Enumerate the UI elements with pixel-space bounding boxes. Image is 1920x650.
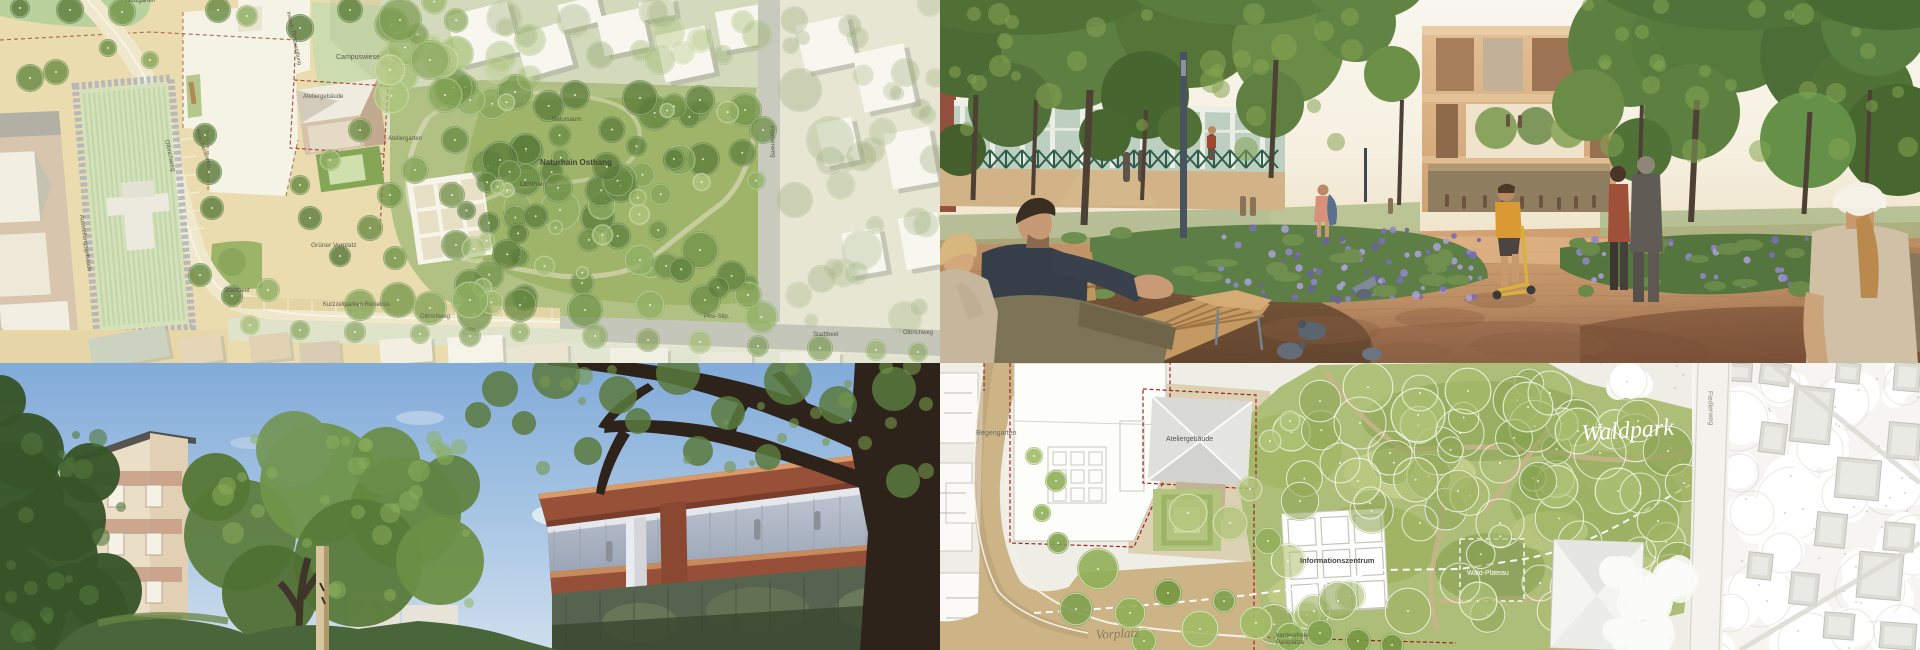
svg-text:Parkplätze: Parkplätze — [1276, 640, 1305, 646]
svg-text:Stadtbeet: Stadtbeet — [224, 288, 250, 294]
svg-text:Ateliergebäude: Ateliergebäude — [303, 94, 344, 100]
svg-text:Campuswiese: Campuswiese — [336, 54, 380, 61]
svg-text:Kurzzeitparken Reisebus: Kurzzeitparken Reisebus — [323, 302, 390, 308]
svg-text:Lichthain: Lichthain — [520, 181, 546, 188]
svg-text:Fiedlerweg: Fiedlerweg — [1706, 391, 1714, 426]
svg-text:Stadtbeet: Stadtbeet — [813, 332, 839, 338]
svg-text:Natursaum: Natursaum — [552, 117, 581, 123]
svg-text:Naturhain Osthang: Naturhain Osthang — [540, 158, 612, 167]
svg-text:Informationszentrum: Informationszentrum — [1300, 556, 1375, 565]
svg-text:Ateliergebäude: Ateliergebäude — [1166, 436, 1213, 443]
svg-text:Nutzgarten: Nutzgarten — [126, 0, 155, 4]
svg-text:Grüner Vorplatz: Grüner Vorplatz — [311, 242, 357, 249]
svg-text:Wald-Plateau: Wald-Plateau — [1467, 570, 1509, 577]
svg-text:Vorplatz: Vorplatz — [1095, 625, 1139, 642]
svg-text:Regengarten: Regengarten — [976, 430, 1017, 437]
svg-text:Olbrichweg: Olbrichweg — [420, 314, 450, 320]
svg-text:Ateliergarten: Ateliergarten — [388, 136, 422, 142]
svg-text:barrierefreie: barrierefreie — [1276, 633, 1309, 639]
svg-text:Olbrichweg: Olbrichweg — [903, 330, 933, 336]
svg-text:Pkw-Stlp.: Pkw-Stlp. — [704, 314, 730, 320]
